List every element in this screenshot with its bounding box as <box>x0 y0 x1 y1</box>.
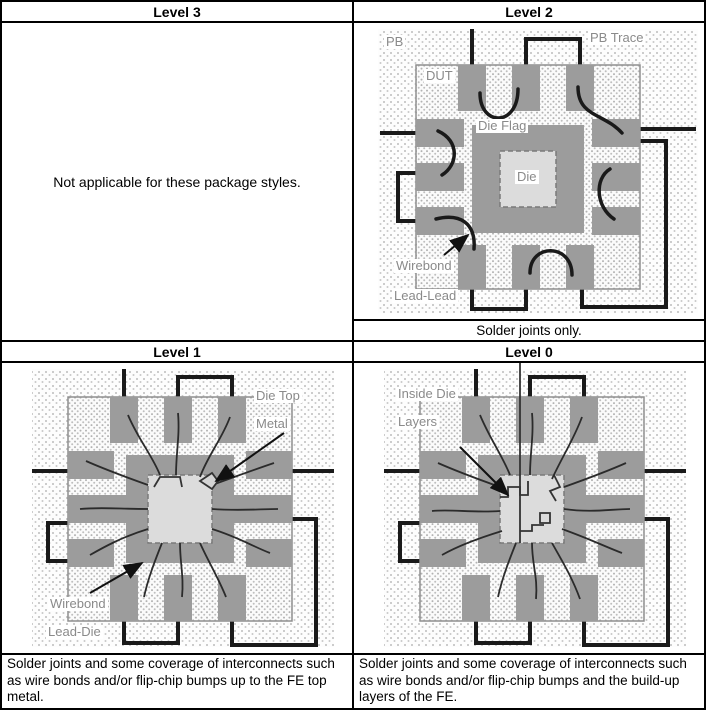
level3-header-text: Level 3 <box>153 4 200 20</box>
level2-header-text: Level 2 <box>505 4 552 20</box>
wirebond-label: Wirebond <box>48 597 108 611</box>
die-flag-label: Die Flag <box>476 119 528 133</box>
package-coverage-table: Level 3 Level 2 Not applicable for these… <box>0 0 706 710</box>
dut-label: DUT <box>424 69 455 83</box>
level0-caption-cell: Solder joints and some coverage of inter… <box>354 655 704 708</box>
level2-caption-cell: Solder joints only. <box>354 321 704 340</box>
level2-diagram: PB PB Trace DUT Die Flag Die Wirebond Le… <box>354 23 704 319</box>
pb-trace-label: PB Trace <box>588 31 645 45</box>
level1-header-text: Level 1 <box>153 344 200 360</box>
die <box>148 475 212 543</box>
inside-die-layers-label: Inside Die <box>396 387 458 401</box>
level3-header: Level 3 <box>2 2 352 21</box>
level2-caption-text: Solder joints only. <box>476 323 582 338</box>
level1-header: Level 1 <box>2 342 352 361</box>
lead-die-label: Lead-Die <box>46 625 103 639</box>
die-top-metal-label-2: Metal <box>254 417 290 431</box>
lead-lead-label: Lead-Lead <box>392 289 458 303</box>
level2-header: Level 2 <box>354 2 704 21</box>
level0-caption-text: Solder joints and some coverage of inter… <box>359 656 687 704</box>
level3-body-text: Not applicable for these package styles. <box>53 174 300 190</box>
die <box>500 475 564 543</box>
level0-header-text: Level 0 <box>505 344 552 360</box>
level0-header: Level 0 <box>354 342 704 361</box>
wirebond-label: Wirebond <box>394 259 454 273</box>
level0-diagram: Inside Die Layers <box>354 363 704 653</box>
level3-body-cell: Not applicable for these package styles. <box>2 23 352 340</box>
level1-diagram: Die Top Metal Wirebond Lead-Die <box>2 363 352 653</box>
level1-caption-text: Solder joints and some coverage of inter… <box>7 656 335 704</box>
die-label: Die <box>515 170 539 184</box>
level1-caption-cell: Solder joints and some coverage of inter… <box>2 655 352 708</box>
die-top-metal-label: Die Top <box>254 389 302 403</box>
pb-label: PB <box>384 35 405 49</box>
level0-diagram-svg <box>354 363 704 653</box>
inside-die-layers-label-2: Layers <box>396 415 439 429</box>
